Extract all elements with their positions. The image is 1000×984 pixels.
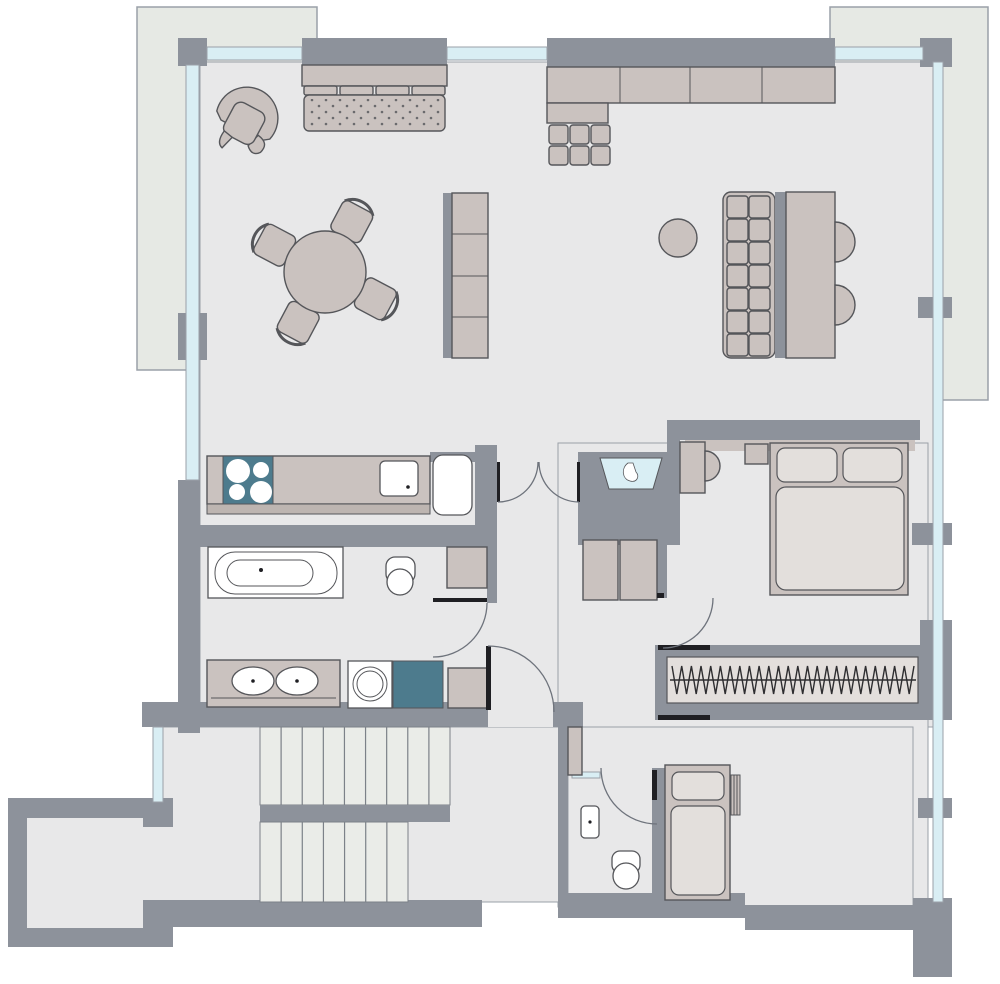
wall-stairhall-bottom [142, 900, 482, 927]
wall-bedroom-north [667, 420, 920, 440]
entry-door-leaf [486, 646, 491, 710]
burner-3 [229, 484, 245, 500]
window-west [186, 65, 199, 480]
window-top-2 [447, 47, 547, 60]
bedroom-door-opening [657, 598, 667, 648]
sideboard-boxes-item [549, 125, 568, 144]
stairs-landing [260, 805, 450, 822]
wall-top-right [547, 38, 835, 67]
window-top-1 [207, 47, 302, 60]
sideboard-top [547, 67, 835, 103]
sofa-cushion-row-item [412, 86, 445, 95]
bench-tufts-item [727, 196, 748, 218]
alcove-floor [27, 818, 143, 928]
kitchen-sink-drain [406, 485, 410, 489]
stool [659, 219, 697, 257]
toilet-bowl [387, 569, 413, 595]
mattress [776, 487, 904, 590]
wardrobe-slider-bottom [658, 715, 710, 720]
wc-toilet-bowl [613, 863, 639, 889]
bench-tufts-item [727, 288, 748, 310]
window-east [933, 62, 943, 902]
bathtub [208, 547, 343, 598]
single-bed-pillow [672, 772, 724, 800]
pillow-1 [777, 448, 837, 482]
stairs-upper-flight [260, 727, 450, 805]
double-door-leaf-right [577, 462, 580, 502]
double-door-leaf-left [497, 462, 500, 502]
sideboard-boxes-item [591, 125, 610, 144]
bench-tufts-item [749, 242, 770, 264]
bench-tufts-item [749, 265, 770, 287]
window-top-3 [835, 47, 923, 60]
floor-plan-svg [0, 0, 1000, 984]
pillow-2 [843, 448, 902, 482]
burner-2 [253, 462, 269, 478]
wall-top-sofa [302, 38, 447, 66]
floor-plan [0, 0, 1000, 984]
sideboard-boxes-item [591, 146, 610, 165]
fridge [433, 455, 472, 515]
wc-sink-drain [588, 820, 591, 823]
radiator [731, 775, 740, 815]
wc-room-door-leaf [652, 770, 657, 800]
hall-cabinet-2 [620, 540, 657, 600]
column-right-2 [912, 523, 952, 545]
washroom-door-leaf [433, 598, 487, 602]
bench-tufts-item [727, 311, 748, 333]
sideboard-return [547, 103, 608, 123]
single-bed-mattress [671, 806, 725, 895]
shelf-unit [443, 193, 488, 358]
wall-bottom-right-room [745, 905, 920, 930]
bench-tufts-item [749, 311, 770, 333]
pier-entry [553, 702, 583, 727]
sofa-seat-dots [308, 99, 441, 127]
hall-cabinet-1 [583, 540, 618, 600]
nightstand [745, 444, 768, 464]
sofa-cushion-row-item [304, 86, 337, 95]
bench-table-gap [775, 192, 786, 358]
wall-wc-west [558, 725, 568, 895]
wc-shelf [568, 727, 582, 775]
shelf-unit-back [443, 193, 452, 358]
vanity-drain-1 [251, 679, 255, 683]
wall-kitchen-bath [180, 525, 497, 547]
sofa-cushion-row-item [340, 86, 373, 95]
closet [655, 645, 920, 720]
bench-tufts-item [727, 334, 748, 356]
burner-4 [250, 481, 272, 503]
bench-tufts-item [749, 196, 770, 218]
column-top-left [178, 38, 207, 66]
bedroom-door-jamb [657, 593, 664, 598]
sofa-cushion-row-item [376, 86, 409, 95]
bench-tufts-item [749, 288, 770, 310]
wall-bath-east [487, 547, 497, 603]
bath-cabinet [447, 547, 487, 588]
sideboard-boxes-item [570, 146, 589, 165]
sideboard-boxes-item [570, 125, 589, 144]
round-dining-table [284, 231, 366, 313]
alcove-opening [143, 827, 173, 900]
vanity-drain-2 [295, 679, 299, 683]
window-west-lower [153, 727, 163, 802]
entry-opening [488, 702, 553, 727]
bench-tufts-item [727, 242, 748, 264]
bench-tufts-item [727, 219, 748, 241]
burner-1 [226, 459, 250, 483]
sofa-backrest [302, 65, 447, 86]
bench-tufts-item [749, 334, 770, 356]
washroom-cabinet [448, 668, 487, 708]
sofa [302, 65, 447, 131]
wall-west [178, 480, 200, 733]
laundry-appliance [393, 661, 443, 708]
stairs-lower-flight [260, 822, 408, 902]
bench-tufts-item [727, 265, 748, 287]
bench-tufts-item [749, 219, 770, 241]
dressing-table [680, 442, 705, 493]
kitchen-sink [380, 461, 418, 496]
sideboard-boxes-item [549, 146, 568, 165]
kitchen-counter-edge [207, 504, 430, 514]
bathtub-drain [259, 568, 263, 572]
nook-table [786, 192, 835, 358]
